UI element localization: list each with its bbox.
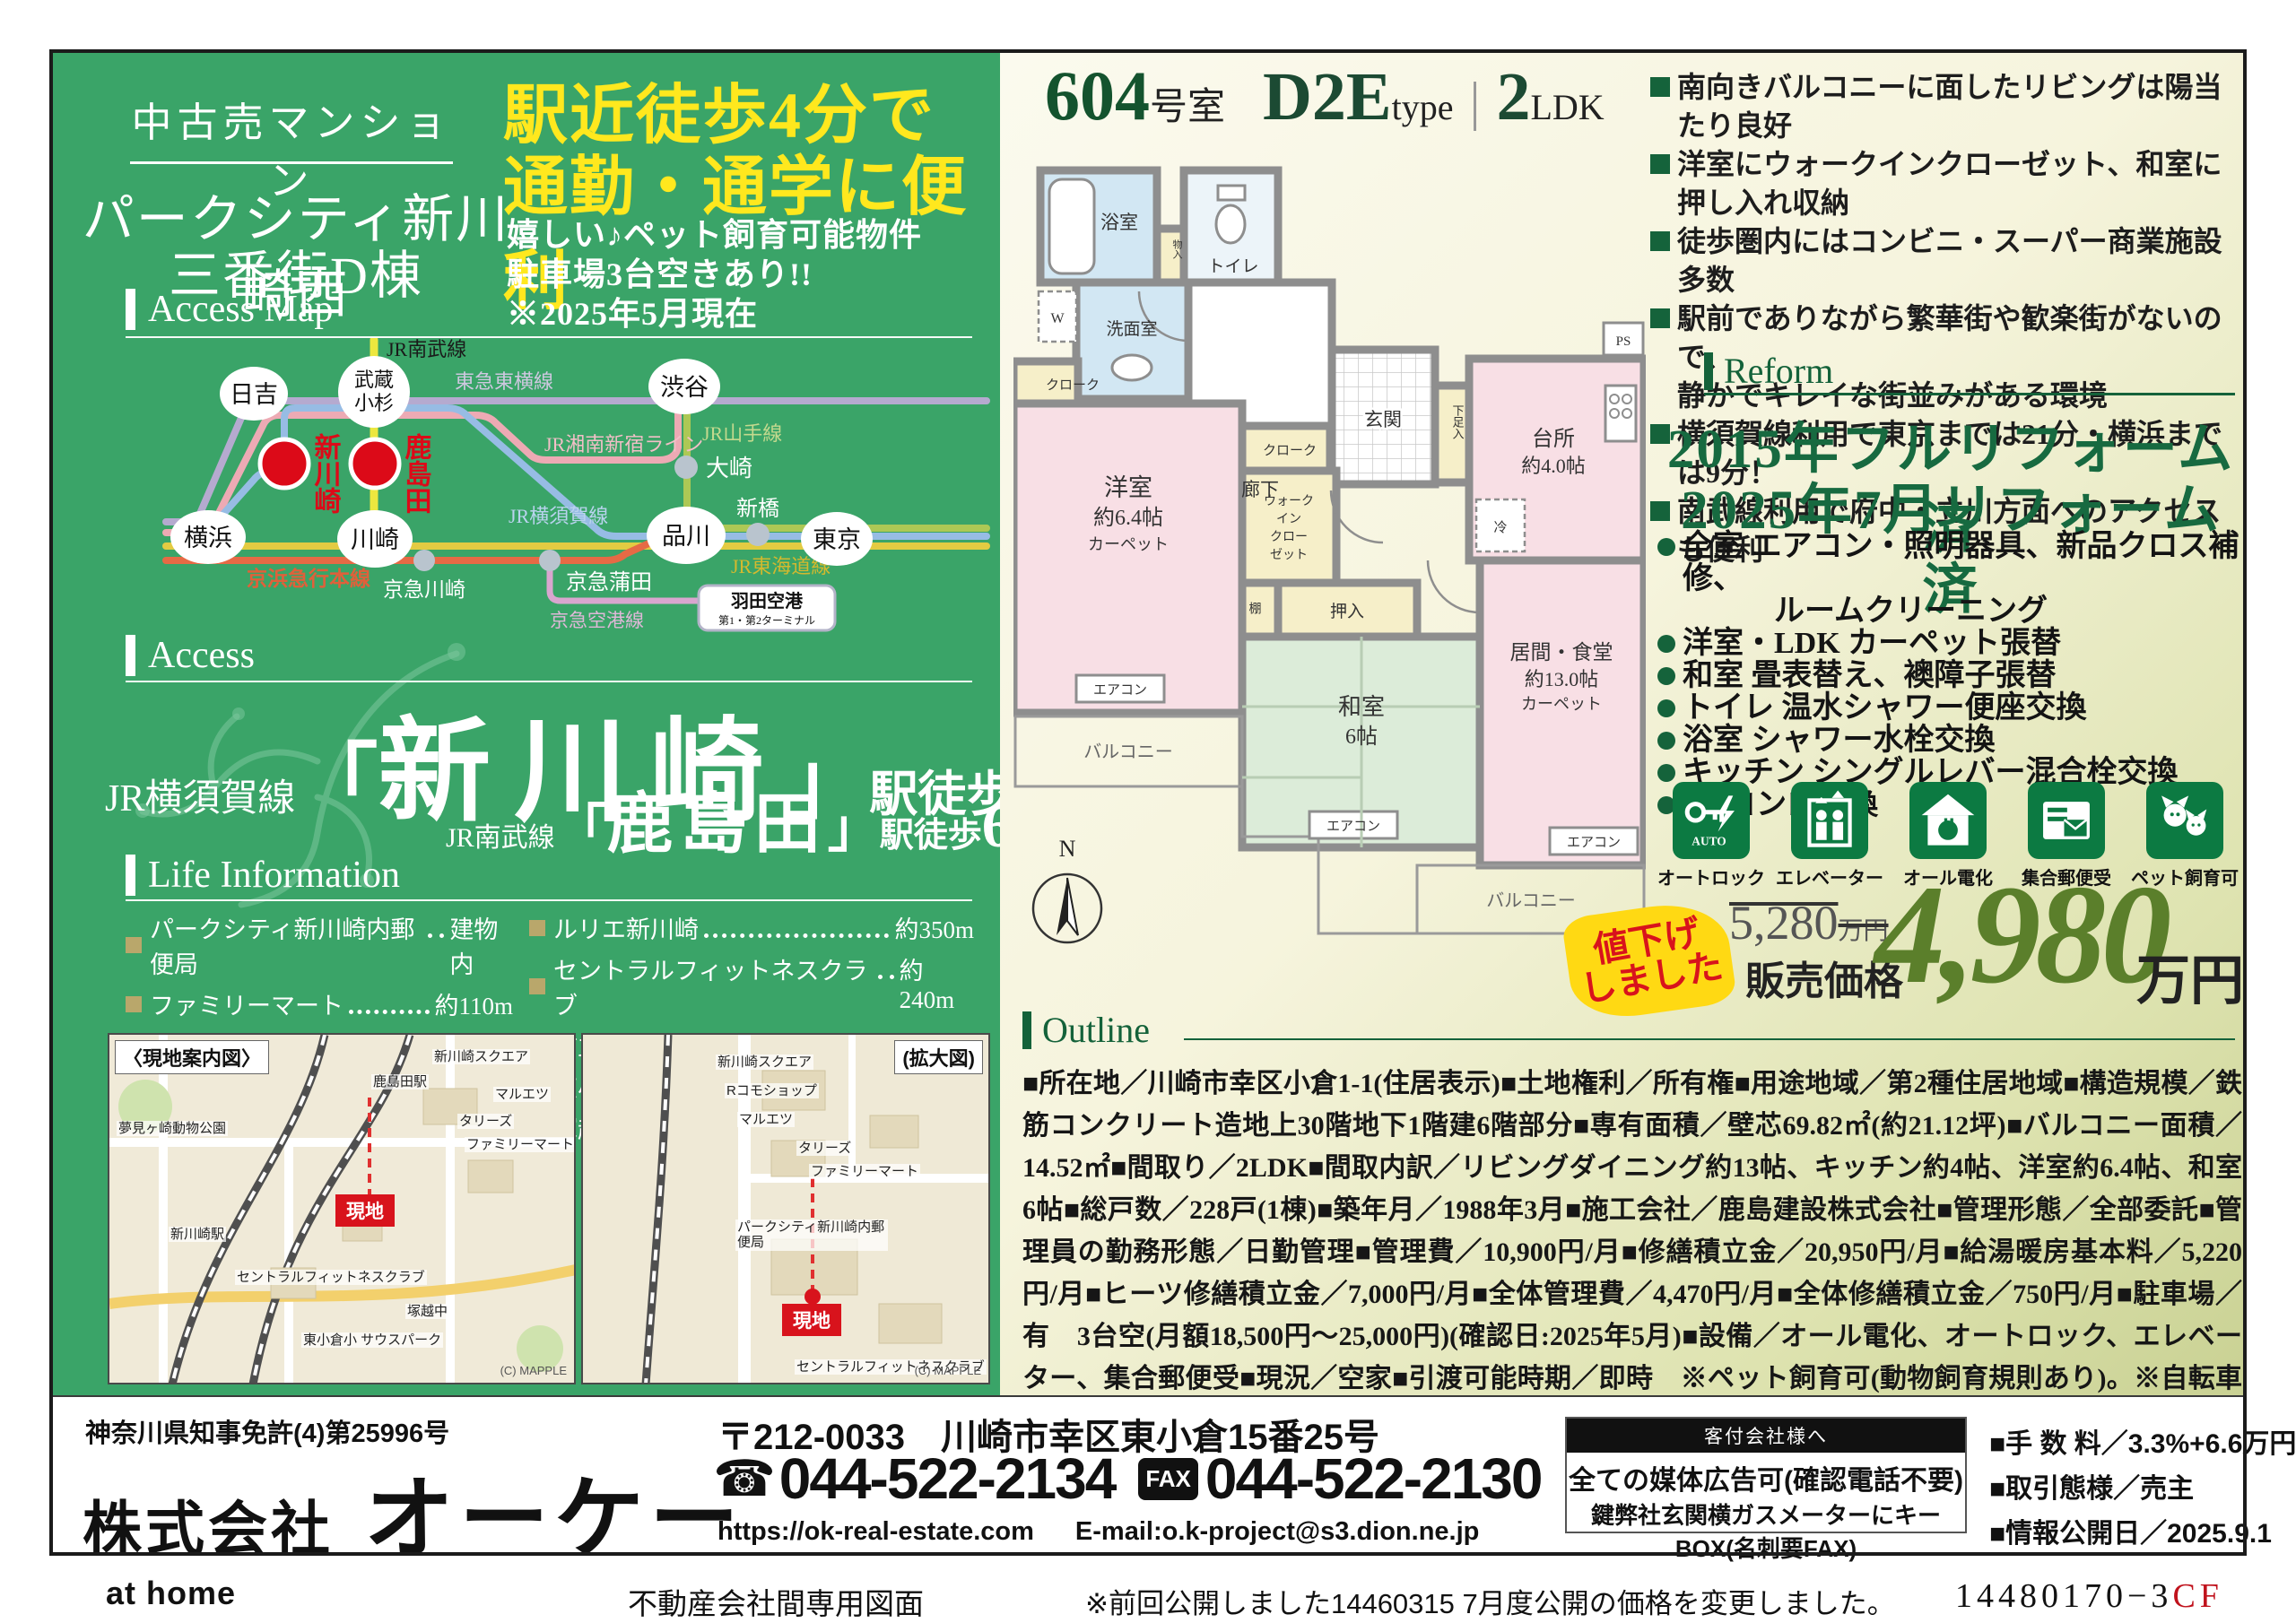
document-type: 不動産会社間専用図面 [628, 1580, 924, 1623]
code-suffix: CF [2172, 1577, 2222, 1615]
code-number: 14480170−3 [1955, 1577, 2172, 1615]
footer-note: ※前回公開しました14460315 7月度公開の価格を変更しました。 [1085, 1581, 1895, 1621]
athome-logo: at home [106, 1575, 236, 1612]
flyer-page: 中古売マンション パークシティ新川崎西 三番街D棟 駅近徒歩4分で 通勤・通学に… [0, 0, 2296, 1620]
document-code: 14480170−3CF [1955, 1576, 2223, 1616]
page-border [49, 49, 2247, 1556]
